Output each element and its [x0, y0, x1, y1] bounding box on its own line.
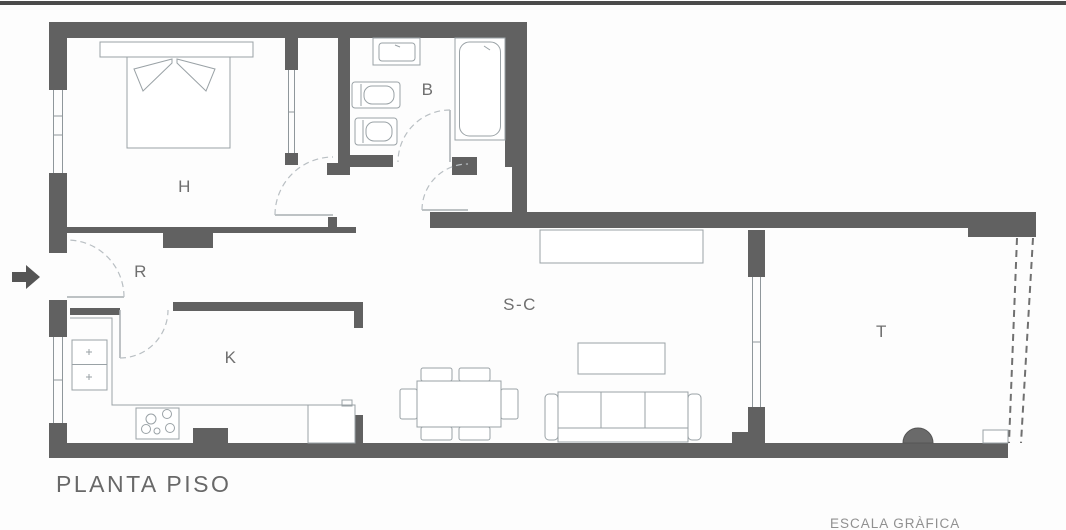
terrace-glass-door [748, 277, 765, 407]
living-dining-label: S-C [503, 295, 537, 314]
terrace-step [983, 430, 1008, 443]
kitchen-counter [70, 318, 355, 443]
bathtub [455, 38, 505, 140]
bedroom-door [275, 157, 333, 215]
dining-chair [459, 368, 490, 381]
bedroom-label: H [178, 177, 192, 196]
dining-chair [459, 427, 490, 440]
bathroom-sink [373, 38, 420, 65]
dining-table-set [400, 368, 518, 440]
storage-ledge [540, 230, 703, 263]
dining-chair [421, 368, 452, 381]
closet-sliding-door [285, 70, 298, 153]
sofa [545, 392, 701, 442]
kitchen-door [120, 310, 168, 358]
floor-plan: H B R K S-C T PLANTA PISO ESCALA GRÀFICA [0, 0, 1066, 530]
dining-chair [421, 427, 452, 440]
dining-chair [501, 389, 518, 419]
coffee-table [578, 343, 665, 374]
terrace-planter [903, 428, 933, 443]
bidet [355, 118, 397, 145]
dining-table [417, 381, 501, 427]
fridge [72, 340, 107, 390]
terrace-boundary-dashed [1009, 238, 1033, 443]
entry-arrow-icon [12, 265, 40, 289]
hall-label: R [134, 262, 148, 281]
bathroom-label: B [422, 80, 435, 99]
kitchen-label: K [225, 348, 238, 367]
entry-door [67, 240, 124, 297]
page-top-rule [0, 1, 1066, 5]
plan-title: PLANTA PISO [56, 471, 231, 498]
stove [136, 408, 179, 439]
bed [100, 42, 253, 148]
bedroom-window [49, 90, 67, 173]
floor-plan-canvas: H B R K S-C T [0, 0, 1066, 530]
bathroom-door [398, 110, 450, 162]
toilet [352, 82, 400, 108]
kitchen-window [49, 337, 67, 423]
dining-chair [400, 389, 417, 419]
terrace-label: T [876, 322, 888, 341]
scale-caption: ESCALA GRÀFICA [830, 516, 960, 530]
